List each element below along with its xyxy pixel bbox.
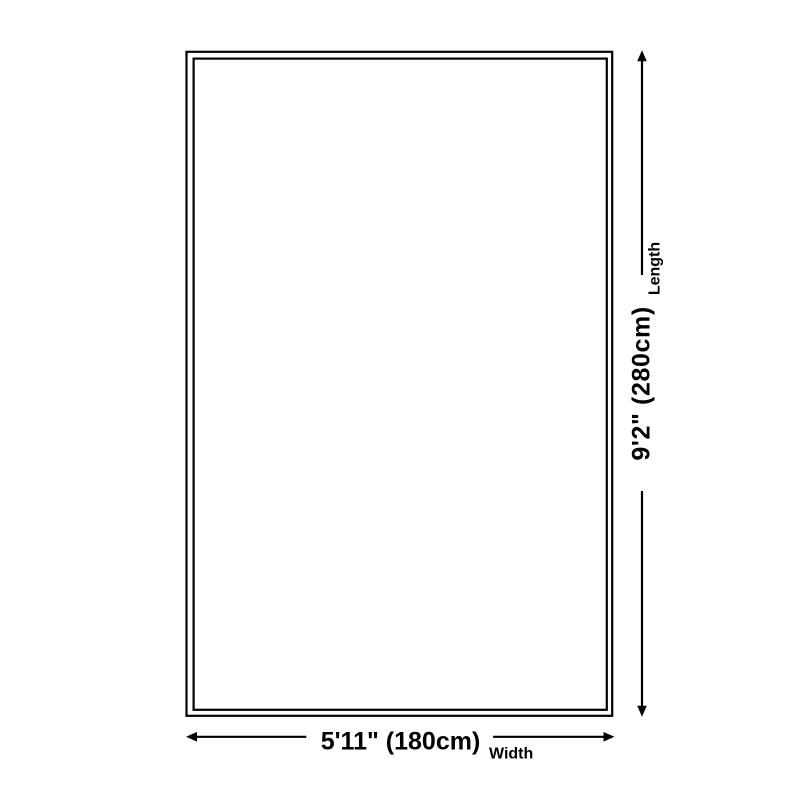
svg-text:Length: Length [647,242,664,295]
svg-text:5'11" (180cm): 5'11" (180cm) [321,728,481,756]
svg-text:9'2" (280cm): 9'2" (280cm) [628,306,656,461]
svg-text:Width: Width [489,746,533,763]
